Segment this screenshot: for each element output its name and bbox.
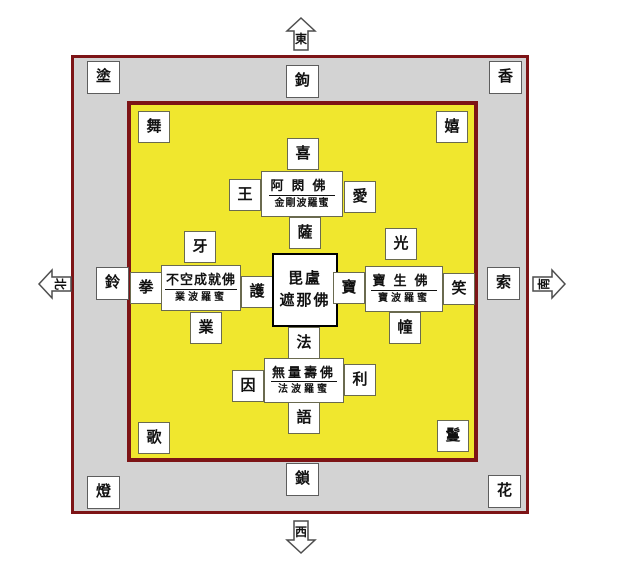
outer-edge-box-bottom: 鎖 bbox=[286, 463, 319, 496]
inner-corner-box-bottom-right: 鬘 bbox=[437, 420, 469, 452]
left-group-satellite-bottom: 業 bbox=[190, 312, 222, 344]
left-group-satellite-right: 護 bbox=[241, 276, 273, 308]
paramita-label-right: 寶波羅蜜 bbox=[378, 293, 430, 304]
buddha-box-left: 不空成就佛 業波羅蜜 bbox=[161, 265, 241, 311]
buddha-name-bottom: 無量壽佛 bbox=[271, 366, 337, 383]
right-group-satellite-left: 寶 bbox=[333, 272, 365, 304]
compass-label-north: 北 bbox=[54, 278, 66, 290]
left-group-satellite-top: 牙 bbox=[184, 231, 216, 263]
buddha-name-left: 不空成就佛 bbox=[165, 273, 237, 290]
compass-arrow-south: 南 bbox=[531, 266, 567, 302]
buddha-box-bottom: 無量壽佛 法波羅蜜 bbox=[264, 358, 344, 403]
top-group-satellite-bottom: 薩 bbox=[289, 217, 321, 249]
inner-corner-box-top-left: 舞 bbox=[138, 111, 170, 143]
outer-edge-box-top: 鉤 bbox=[286, 65, 319, 98]
compass-arrow-west: 西 bbox=[283, 519, 319, 555]
center-buddha-box: 毘盧 遮那佛 bbox=[272, 253, 338, 327]
outer-corner-box-top-left: 塗 bbox=[87, 61, 120, 94]
outer-corner-box-bottom-right: 花 bbox=[488, 475, 521, 508]
paramita-label-left: 業波羅蜜 bbox=[175, 292, 227, 303]
bottom-group-satellite-left: 因 bbox=[232, 370, 264, 402]
compass-label-south-wrap: 南 bbox=[531, 266, 567, 302]
paramita-label-top: 金剛波羅蜜 bbox=[275, 198, 330, 209]
buddha-box-top: 阿閦佛 金剛波羅蜜 bbox=[261, 171, 343, 217]
top-group-satellite-right: 愛 bbox=[344, 181, 376, 213]
compass-arrow-north: 北 bbox=[37, 266, 73, 302]
outer-edge-box-right: 索 bbox=[487, 267, 520, 300]
outer-corner-box-bottom-left: 燈 bbox=[87, 476, 120, 509]
compass-arrow-east: 東 bbox=[283, 16, 319, 52]
left-group-satellite-left: 拳 bbox=[130, 272, 162, 304]
compass-label-west: 西 bbox=[295, 526, 307, 538]
outer-corner-box-top-right: 香 bbox=[489, 61, 522, 94]
right-group-satellite-bottom: 幢 bbox=[389, 312, 421, 344]
compass-label-east: 東 bbox=[295, 33, 307, 45]
compass-label-west-wrap: 西 bbox=[283, 519, 319, 555]
buddha-name-right: 寶生佛 bbox=[371, 274, 436, 291]
inner-corner-box-bottom-left: 歌 bbox=[138, 422, 170, 454]
top-group-satellite-top: 喜 bbox=[287, 138, 319, 170]
top-group-satellite-left: 王 bbox=[229, 179, 261, 211]
inner-corner-box-top-right: 嬉 bbox=[436, 111, 468, 143]
bottom-group-satellite-bottom: 語 bbox=[288, 402, 320, 434]
bottom-group-satellite-top: 法 bbox=[288, 327, 320, 359]
compass-label-east-wrap: 東 bbox=[283, 16, 319, 52]
outer-edge-box-left: 鈴 bbox=[96, 267, 129, 300]
mandala-diagram: 東 西 北 南 塗 香 燈 花 鉤 索 鎖 鈴 舞 嬉 歌 鬘 喜 王 阿閦佛 … bbox=[0, 0, 621, 571]
right-group-satellite-top: 光 bbox=[385, 228, 417, 260]
buddha-name-top: 阿閦佛 bbox=[269, 179, 334, 196]
compass-label-north-wrap: 北 bbox=[37, 266, 73, 302]
buddha-box-right: 寶生佛 寶波羅蜜 bbox=[365, 266, 443, 312]
paramita-label-bottom: 法波羅蜜 bbox=[278, 384, 330, 395]
center-buddha-line2: 遮那佛 bbox=[279, 290, 330, 313]
compass-label-south: 南 bbox=[538, 278, 550, 290]
center-buddha-line1: 毘盧 bbox=[288, 268, 322, 291]
right-group-satellite-right: 笑 bbox=[443, 273, 475, 305]
bottom-group-satellite-right: 利 bbox=[344, 364, 376, 396]
